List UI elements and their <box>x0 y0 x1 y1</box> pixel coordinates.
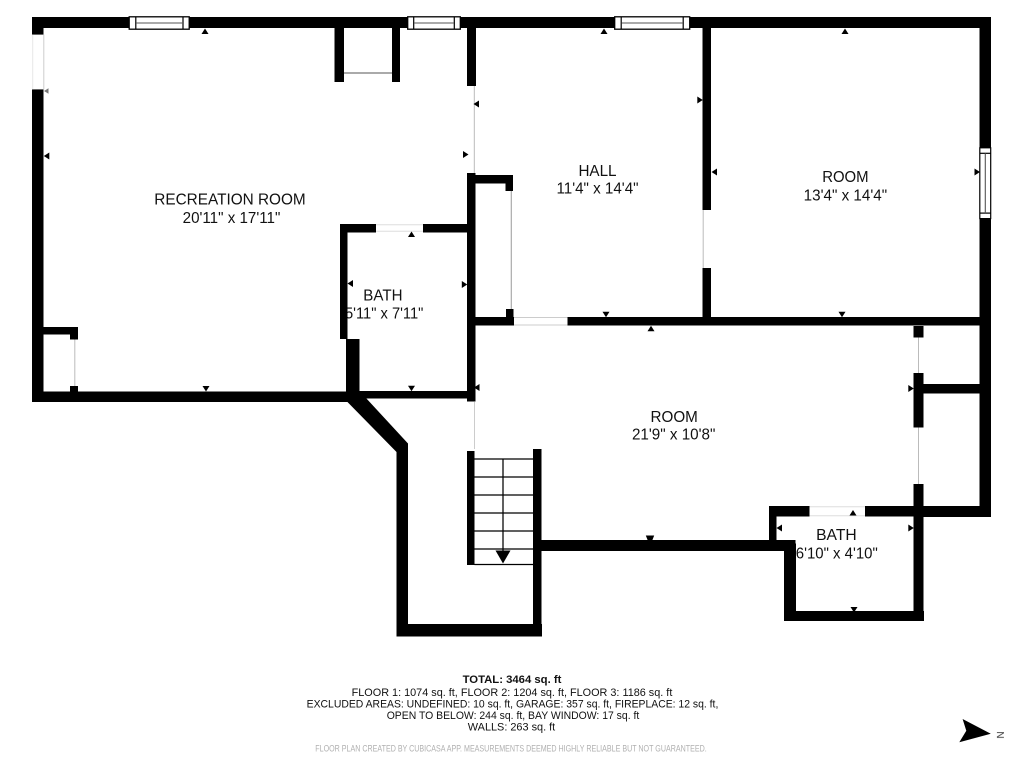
svg-text:EXCLUDED AREAS: UNDEFINED: 10: EXCLUDED AREAS: UNDEFINED: 10 sq. ft, GA… <box>307 699 719 711</box>
svg-text:20'11" x 17'11": 20'11" x 17'11" <box>183 210 281 227</box>
svg-text:5'11" x 7'11": 5'11" x 7'11" <box>345 306 423 323</box>
svg-text:N: N <box>994 731 1005 738</box>
svg-text:TOTAL: 3464 sq. ft: TOTAL: 3464 sq. ft <box>463 674 562 686</box>
svg-text:6'10" x 4'10": 6'10" x 4'10" <box>796 546 878 563</box>
svg-text:OPEN TO BELOW: 244 sq. ft, BAY: OPEN TO BELOW: 244 sq. ft, BAY WINDOW: 1… <box>387 710 640 722</box>
svg-text:BATH: BATH <box>363 288 402 305</box>
svg-text:BATH: BATH <box>816 527 857 544</box>
svg-text:WALLS: 263 sq. ft: WALLS: 263 sq. ft <box>468 722 555 734</box>
svg-text:FLOOR 1: 1074 sq. ft, FLOOR 2:: FLOOR 1: 1074 sq. ft, FLOOR 2: 1204 sq. … <box>352 687 673 699</box>
svg-text:RECREATION ROOM: RECREATION ROOM <box>154 191 305 208</box>
svg-text:HALL: HALL <box>578 163 616 180</box>
svg-text:ROOM: ROOM <box>822 169 868 186</box>
svg-text:ROOM: ROOM <box>651 409 698 426</box>
svg-text:FLOOR PLAN CREATED BY CUBICASA: FLOOR PLAN CREATED BY CUBICASA APP. MEAS… <box>315 744 706 754</box>
svg-text:11'4" x 14'4": 11'4" x 14'4" <box>556 180 638 197</box>
svg-text:13'4" x 14'4": 13'4" x 14'4" <box>804 187 888 204</box>
svg-text:21'9" x 10'8": 21'9" x 10'8" <box>632 427 716 444</box>
